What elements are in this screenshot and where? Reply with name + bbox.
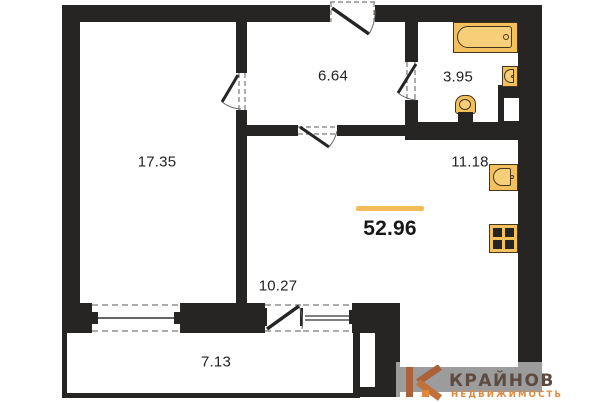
wall-left [62,5,80,333]
burner [505,240,514,249]
wall-partition-upper [236,22,247,73]
balcony-wall-left [62,333,67,398]
balcony-wall-bottom [62,393,360,398]
plan-linework [0,0,605,403]
wall-hall-bottom-left [236,125,298,136]
krainov-logo-icon [405,365,445,401]
toilet-tank [458,112,473,124]
area-label-balcony: 7.13 [201,354,231,371]
logo-brand-text: КРАЙНОВ [449,371,555,391]
total-area-underline [356,206,424,211]
balcony-door [264,305,303,331]
wall-bottom-b [180,303,265,333]
logo-subtitle-text: НЕДВИЖИМОСТЬ [451,390,563,400]
entrance-door [330,2,375,34]
bathtub-drain [503,34,509,40]
window-living [303,305,352,331]
wall-bath-upper [405,22,418,62]
wall-column-foot [353,387,400,397]
wall-top-right [375,5,542,22]
wall-partition-lower [236,110,247,303]
area-label-kitchen: 11.18 [451,154,488,171]
door-bathroom [398,62,416,100]
area-label-room: 17.35 [138,154,177,171]
area-label-living: 10.27 [259,278,298,295]
kitchen-sink-icon [489,164,518,191]
wall-bottom-c [352,303,400,333]
wall-bottom-a [62,303,92,333]
door-room [222,73,245,110]
wall-right [518,5,542,392]
balcony-wall-right [353,333,360,398]
door-hall [298,127,337,147]
burner [493,240,502,249]
burner [493,228,502,237]
bathtub-icon [453,22,518,53]
toilet-bowl [459,99,471,110]
kitchen-sink-basin [493,168,511,186]
stove-icon [489,224,518,253]
sink-drain [511,75,514,78]
area-label-hallway: 6.64 [318,68,348,85]
burner [505,228,514,237]
wall-top-left [62,5,330,22]
total-area-label: 52.96 [363,217,417,241]
window-room [92,305,180,331]
bathroom-sink-icon [502,66,518,87]
kitchen-sink-drain [510,175,514,179]
area-label-bathroom: 3.95 [443,69,473,86]
floor-plan: 17.35 6.64 3.95 11.18 10.27 7.13 52.96 К… [0,0,605,403]
vent-duct [504,98,519,121]
